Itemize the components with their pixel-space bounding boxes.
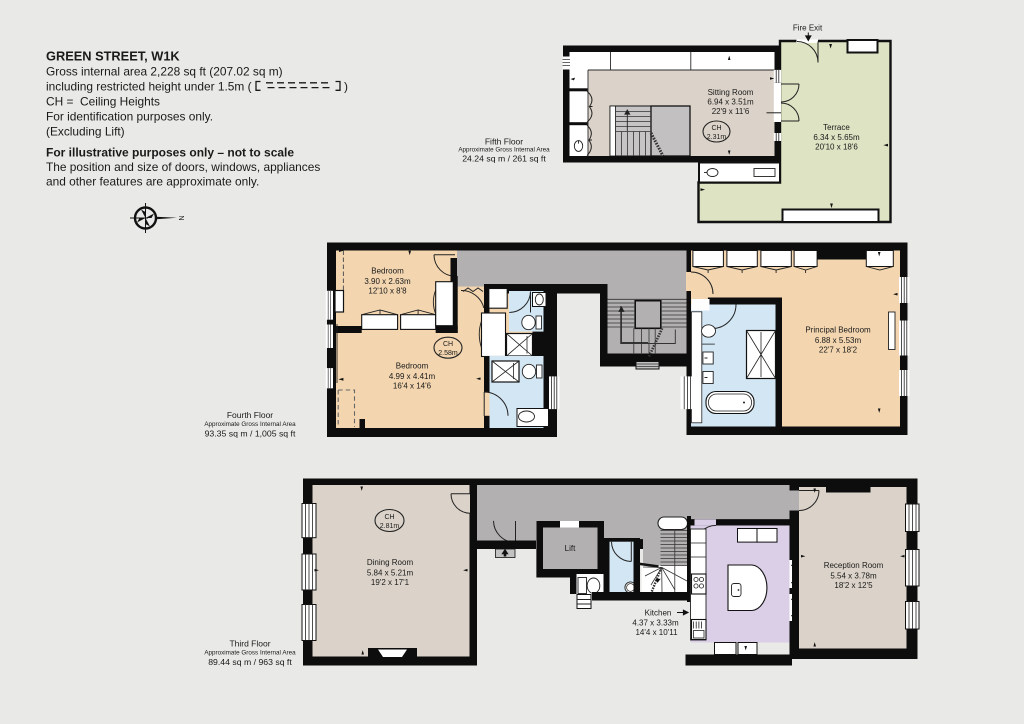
svg-text:5.54 x 3.78m: 5.54 x 3.78m [830, 572, 877, 581]
svg-text:16'4 x 14'6: 16'4 x 14'6 [393, 382, 432, 391]
svg-text:Principal Bedroom: Principal Bedroom [805, 326, 871, 335]
svg-text:Sitting Room: Sitting Room [708, 88, 754, 97]
svg-text:18'2 x 12'5: 18'2 x 12'5 [834, 581, 873, 590]
svg-text:6.34 x 5.65m: 6.34 x 5.65m [813, 133, 860, 142]
svg-text:6.94 x 3.51m: 6.94 x 3.51m [707, 98, 754, 107]
svg-text:4.37 x 3.33m: 4.37 x 3.33m [632, 619, 679, 628]
svg-text:Bedroom: Bedroom [396, 362, 429, 371]
svg-text:The position and size of doors: The position and size of doors, windows,… [46, 160, 320, 174]
svg-text:5.84 x 5.21m: 5.84 x 5.21m [367, 569, 414, 578]
svg-text:Fourth Floor: Fourth Floor [227, 410, 273, 420]
svg-text:and other features are approxi: and other features are approximate only. [46, 175, 259, 189]
svg-text:Bedroom: Bedroom [371, 267, 404, 276]
svg-text:N: N [177, 215, 184, 220]
svg-text:12'10 x 8'8: 12'10 x 8'8 [368, 287, 407, 296]
svg-text:Lift: Lift [565, 544, 576, 553]
svg-text:including restricted height un: including restricted height under 1.5m ( [46, 80, 252, 94]
svg-text:Fifth Floor: Fifth Floor [485, 137, 523, 147]
svg-text:Reception Room: Reception Room [824, 561, 884, 570]
svg-text:93.35 sq m / 1,005 sq ft: 93.35 sq m / 1,005 sq ft [205, 429, 296, 439]
svg-text:2.31m: 2.31m [707, 134, 727, 141]
svg-text:22'9 x 11'6: 22'9 x 11'6 [712, 107, 750, 116]
svg-text:Approximate Gross Internal Are: Approximate Gross Internal Area [204, 650, 296, 657]
svg-text:Gross internal area 2,228 sq f: Gross internal area 2,228 sq ft (207.02 … [46, 65, 283, 79]
svg-text:CH: CH [443, 341, 453, 348]
svg-text:4.99 x 4.41m: 4.99 x 4.41m [389, 372, 436, 381]
svg-text:19'2 x 17'1: 19'2 x 17'1 [371, 578, 410, 587]
svg-text:For illustrative purposes only: For illustrative purposes only – not to … [46, 146, 294, 160]
svg-text:CH: CH [384, 514, 394, 521]
svg-text:Approximate Gross Internal Are: Approximate Gross Internal Area [458, 147, 550, 154]
svg-text:22'7 x 18'2: 22'7 x 18'2 [819, 346, 858, 355]
svg-text:(Excluding Lift): (Excluding Lift) [46, 125, 125, 139]
svg-text:89.44 sq m / 963 sq ft: 89.44 sq m / 963 sq ft [208, 657, 292, 667]
svg-text:6.88 x 5.53m: 6.88 x 5.53m [815, 336, 862, 345]
svg-text:20'10 x 18'6: 20'10 x 18'6 [815, 143, 858, 152]
svg-text:For identification purposes on: For identification purposes only. [46, 110, 213, 124]
svg-text:Kitchen: Kitchen [645, 609, 672, 618]
svg-text:Approximate Gross Internal Are: Approximate Gross Internal Area [204, 421, 296, 428]
svg-text:3.90 x 2.63m: 3.90 x 2.63m [364, 277, 411, 286]
svg-text:Dining Room: Dining Room [367, 558, 414, 567]
svg-text:24.24 sq m / 261 sq ft: 24.24 sq m / 261 sq ft [462, 154, 546, 164]
svg-text:Fire Exit: Fire Exit [793, 24, 823, 33]
svg-text:Third Floor: Third Floor [229, 639, 270, 649]
svg-text:14'4 x 10'11: 14'4 x 10'11 [635, 628, 678, 637]
svg-text:CH: CH [711, 125, 721, 132]
svg-text:): ) [344, 80, 348, 94]
svg-text:GREEN STREET, W1K: GREEN STREET, W1K [46, 49, 180, 64]
svg-text:2.81m: 2.81m [380, 523, 400, 530]
svg-text:CH = Ceiling Heights: CH = Ceiling Heights [46, 95, 160, 109]
svg-text:2.58m: 2.58m [438, 350, 458, 357]
svg-text:Terrace: Terrace [823, 123, 850, 132]
